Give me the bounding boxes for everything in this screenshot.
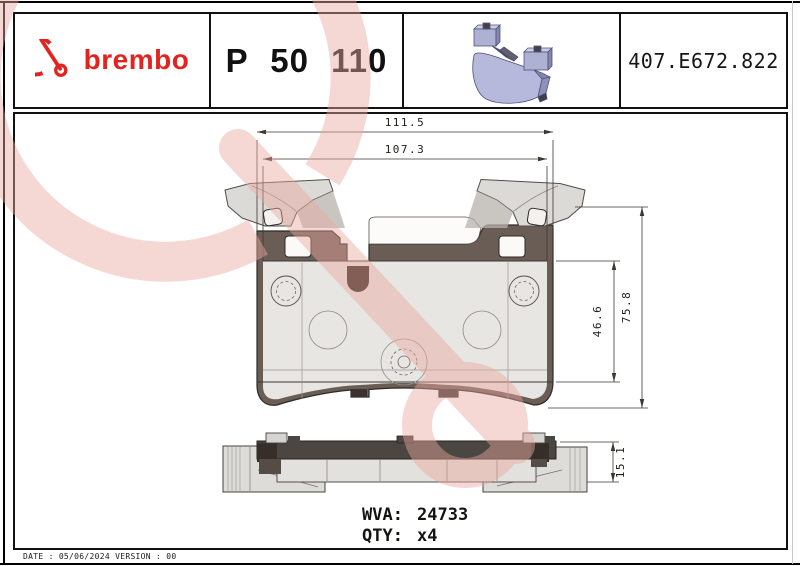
- dim-height-pad: 46.6: [591, 305, 604, 338]
- qty-value: x4: [417, 526, 437, 546]
- dim-width-outer: 111.5: [385, 116, 426, 129]
- footer-note: DATE : 05/06/2024 VERSION : 00: [23, 552, 177, 561]
- wva-value: 24733: [417, 505, 468, 525]
- pad-front-view: [225, 180, 585, 406]
- wva-label: WVA:: [362, 505, 403, 525]
- pad-side-view: [223, 433, 587, 492]
- qty-label: QTY:: [362, 526, 403, 546]
- technical-drawing: 111.5 107.3 46.6 75.8 15.1 WVA: 24733 QT…: [0, 0, 800, 566]
- notes: WVA: 24733 QTY: x4: [362, 505, 468, 546]
- dim-thickness: 15.1: [614, 446, 627, 479]
- dim-height-total: 75.8: [620, 291, 633, 324]
- datasheet-page: brembo P 50 110: [0, 0, 800, 566]
- dim-width-inner: 107.3: [385, 143, 426, 156]
